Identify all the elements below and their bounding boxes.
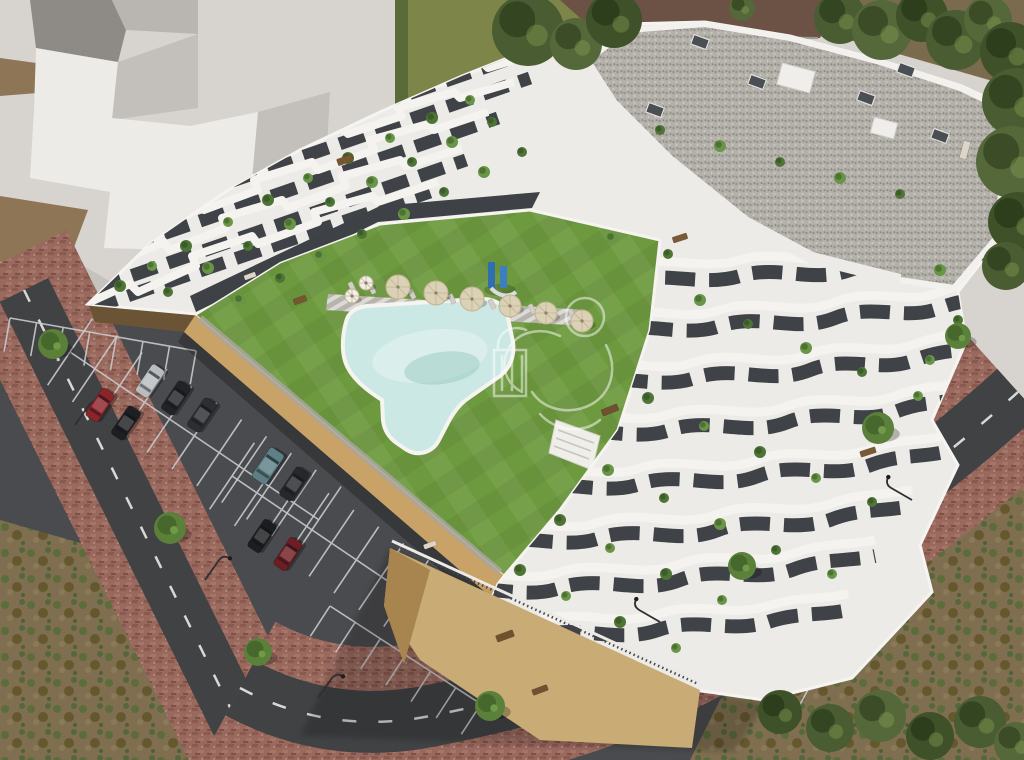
terrace-plant bbox=[487, 117, 497, 127]
terrace-plant bbox=[385, 133, 395, 143]
terrace-plant bbox=[202, 262, 214, 274]
terrace-plant bbox=[827, 569, 837, 579]
terrace-plant bbox=[147, 261, 157, 271]
terrace-plant bbox=[867, 497, 877, 507]
terrace-plant bbox=[895, 189, 905, 199]
terrace-plant bbox=[357, 229, 367, 239]
terrace-plant bbox=[800, 342, 812, 354]
terrace-plant bbox=[857, 367, 867, 377]
terrace-plant bbox=[243, 241, 253, 251]
terrace-plant bbox=[934, 264, 946, 276]
tree-canopy bbox=[854, 690, 906, 742]
terrace-plant bbox=[913, 391, 923, 401]
terrace-plant bbox=[262, 194, 274, 206]
terrace-plant bbox=[517, 147, 527, 157]
terrace-plant bbox=[605, 543, 615, 553]
terrace-plant bbox=[925, 355, 935, 365]
render-image: Aerial 3D architectural rendering of a m… bbox=[0, 0, 1024, 760]
terrace-plant bbox=[699, 421, 709, 431]
aerial-render-scene bbox=[0, 0, 1024, 760]
tree-canopy bbox=[806, 704, 854, 752]
terrace-plant bbox=[811, 473, 821, 483]
terrace-plant bbox=[180, 240, 192, 252]
terrace-plant bbox=[655, 125, 665, 135]
terrace-plant bbox=[407, 157, 417, 167]
terrace-plant bbox=[754, 446, 766, 458]
terrace-plant bbox=[775, 157, 785, 167]
terrace-plant bbox=[465, 95, 475, 105]
terrace-plant bbox=[671, 643, 681, 653]
terrace-plant bbox=[717, 595, 727, 605]
tree-canopy bbox=[758, 690, 802, 734]
terrace-plant bbox=[743, 319, 753, 329]
terrace-plant bbox=[234, 294, 246, 306]
terrace-plant bbox=[642, 392, 654, 404]
terrace-plant bbox=[614, 616, 626, 628]
terrace-plant bbox=[663, 249, 673, 259]
terrace-plant bbox=[275, 273, 285, 283]
terrace-plant bbox=[398, 208, 410, 220]
terrace-plant bbox=[426, 112, 438, 124]
terrace-plant bbox=[163, 287, 173, 297]
terrace-plant bbox=[478, 166, 490, 178]
terrace-plant bbox=[771, 545, 781, 555]
terrace-plant bbox=[446, 136, 458, 148]
terrace-plant bbox=[284, 218, 296, 230]
terrace-plant bbox=[439, 187, 449, 197]
tree-canopy bbox=[906, 712, 954, 760]
terrace-plant bbox=[714, 518, 726, 530]
terrace-plant bbox=[325, 197, 335, 207]
terrace-plant bbox=[659, 493, 669, 503]
terrace-plant bbox=[114, 280, 126, 292]
terrace-plant bbox=[303, 173, 313, 183]
terrace-plant bbox=[606, 232, 618, 244]
terrace-plant bbox=[834, 172, 846, 184]
terrace-plant bbox=[366, 176, 378, 188]
terrace-plant bbox=[561, 591, 571, 601]
terrace-plant bbox=[602, 464, 614, 476]
street-tree bbox=[945, 323, 977, 349]
terrace-plant bbox=[514, 564, 526, 576]
terrace-plant bbox=[694, 294, 706, 306]
terrace-plant bbox=[714, 140, 726, 152]
terrace-plant bbox=[223, 217, 233, 227]
terrace-plant bbox=[660, 568, 672, 580]
terrace-plant bbox=[554, 514, 566, 526]
terrace-plant bbox=[314, 250, 326, 262]
